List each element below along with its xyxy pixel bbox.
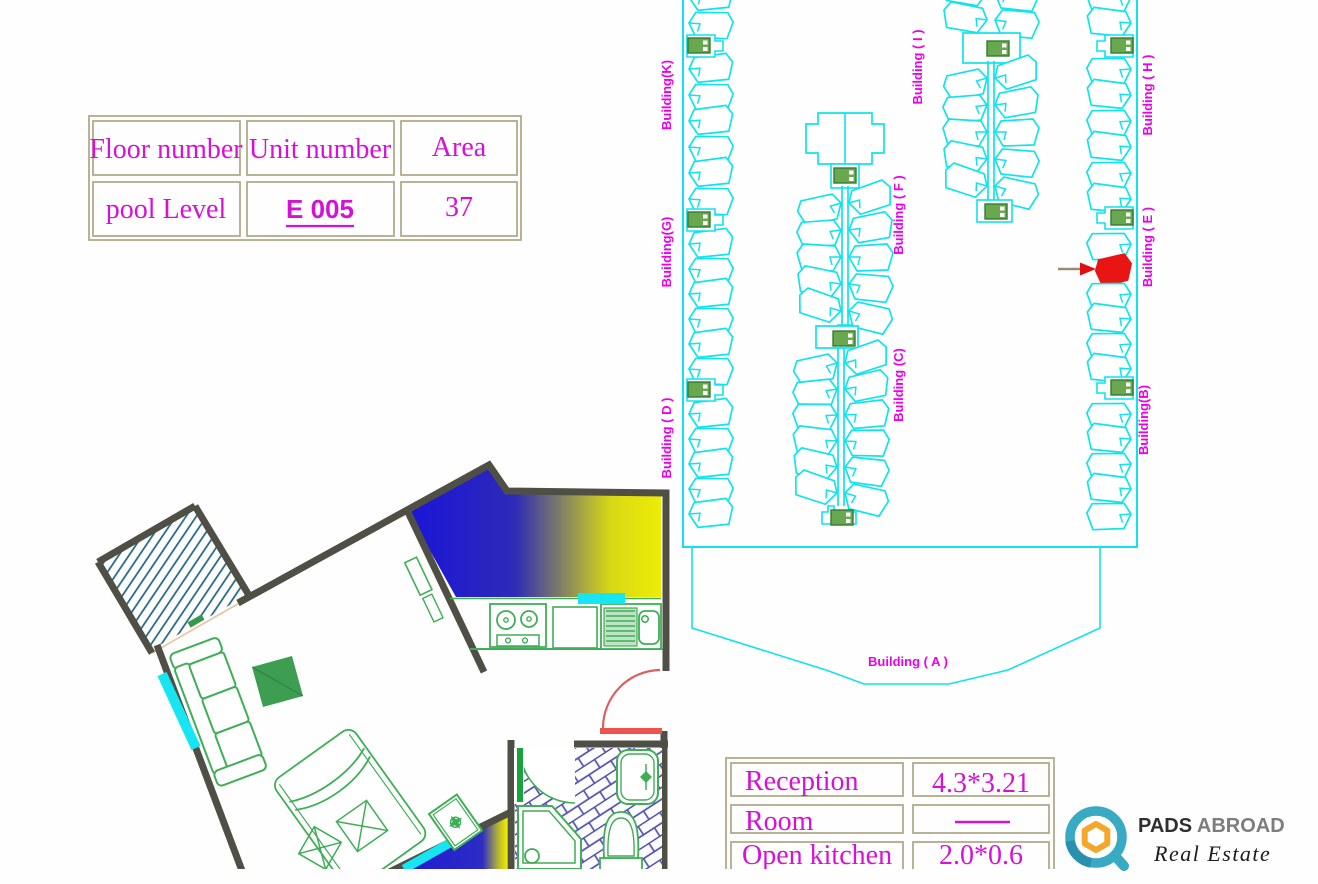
svg-text:Unit number: Unit number [249, 134, 392, 165]
svg-text:Building(B): Building(B) [1136, 385, 1151, 455]
svg-text:PADS ABROAD: PADS ABROAD [1138, 815, 1285, 837]
svg-text:37: 37 [445, 192, 473, 223]
svg-text:Area: Area [432, 132, 487, 163]
svg-text:Building ( E ): Building ( E ) [1140, 207, 1155, 287]
svg-text:E 005: E 005 [286, 194, 354, 224]
svg-text:Building ( I ): Building ( I ) [910, 29, 925, 104]
svg-text:Building ( F ): Building ( F ) [891, 175, 906, 254]
svg-text:2.0*0.6: 2.0*0.6 [939, 840, 1023, 871]
svg-text:pool Level: pool Level [106, 194, 227, 225]
svg-text:Building (C): Building (C) [891, 348, 906, 422]
svg-text:Real Estate: Real Estate [1153, 841, 1271, 866]
svg-text:Room: Room [745, 806, 814, 837]
svg-text:4.3*3.21: 4.3*3.21 [932, 768, 1030, 799]
svg-text:Reception: Reception [745, 766, 859, 797]
svg-text:Building(G): Building(G) [659, 217, 674, 288]
svg-text:Building(K): Building(K) [659, 60, 674, 130]
svg-text:Building ( H ): Building ( H ) [1140, 55, 1155, 136]
svg-text:Building ( A ): Building ( A ) [868, 654, 948, 669]
svg-text:Building ( D ): Building ( D ) [659, 398, 674, 479]
svg-text:Open kitchen: Open kitchen [742, 840, 892, 871]
svg-text:Floor number: Floor number [89, 134, 243, 165]
